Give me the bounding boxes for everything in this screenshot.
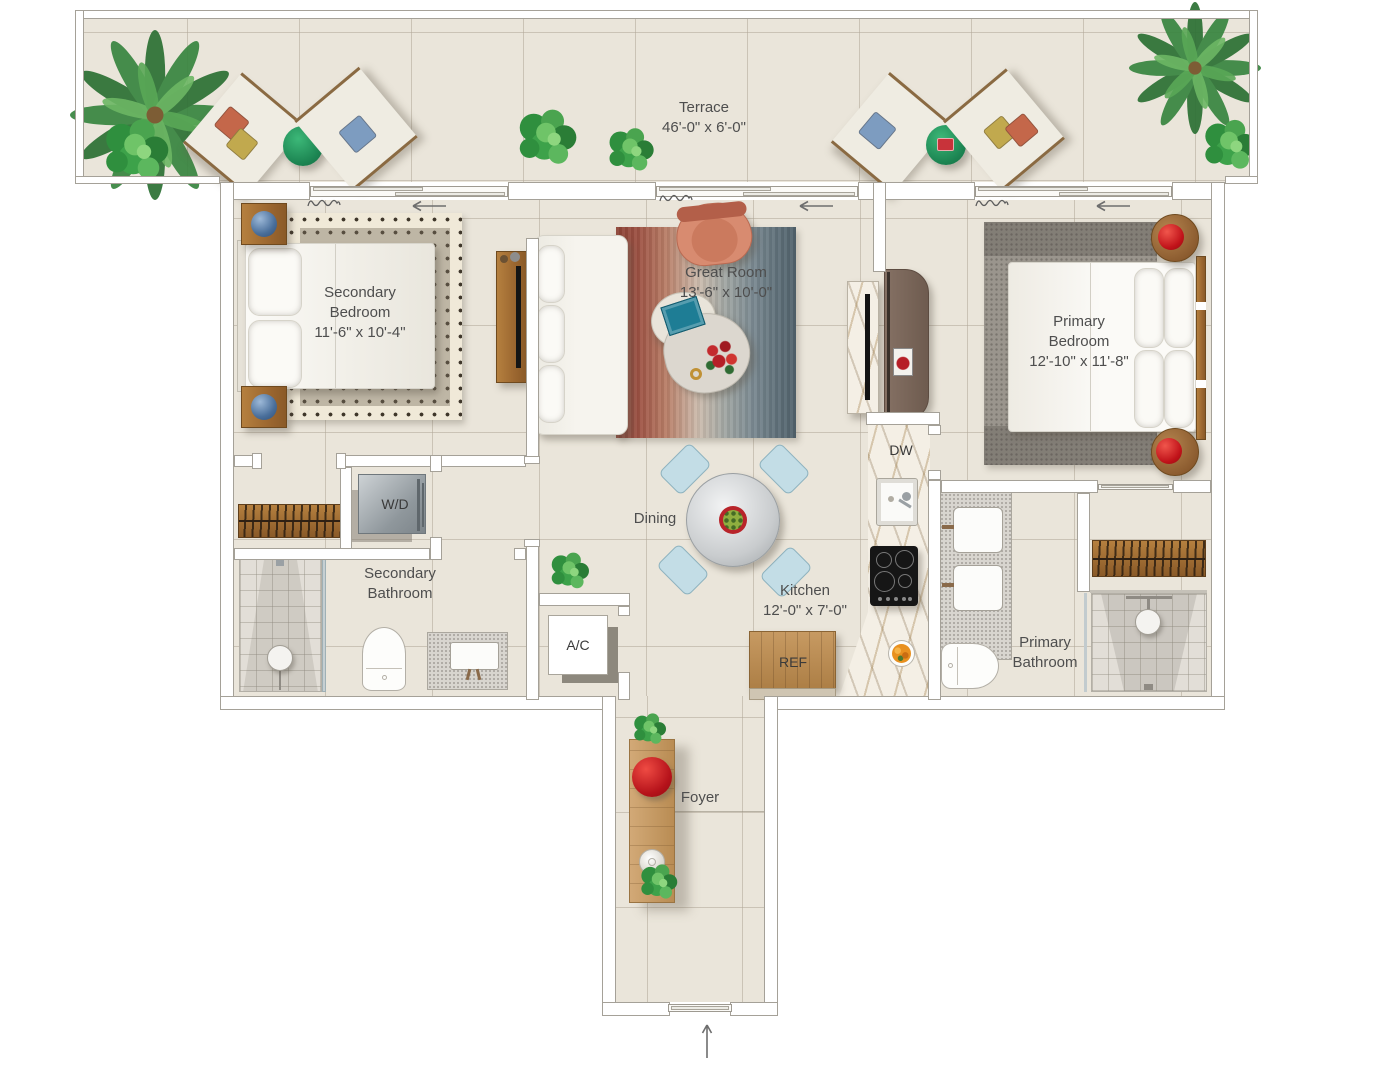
decor-knob: [500, 255, 508, 263]
label-line: Great Room: [626, 263, 826, 283]
label-line: W/D: [345, 495, 445, 514]
door-spring-icon: [658, 192, 694, 204]
label-dishwasher: DW: [851, 441, 951, 460]
wall-segment: [430, 455, 442, 472]
sliding-door: [975, 186, 1172, 197]
faucet-handle: [466, 669, 472, 680]
wall-segment: [764, 696, 778, 1016]
door-panel: [671, 1006, 729, 1010]
wall-segment: [618, 672, 630, 700]
label-line: Bathroom: [945, 653, 1145, 673]
room-label-primary-bedroom: Primary Bedroom 12'-10" x 11'-8": [979, 312, 1179, 372]
door-panel: [978, 187, 1088, 191]
door-slide-arrow-icon: [408, 200, 448, 212]
decor-knob: [510, 252, 520, 262]
cushion: [338, 114, 377, 153]
bed-headboard: [1196, 256, 1206, 440]
wall-segment: [730, 1002, 778, 1016]
faucet: [902, 492, 911, 501]
label-line: DW: [851, 441, 951, 460]
label-line: 11'-6" x 10'-4": [260, 323, 460, 343]
cushion: [858, 111, 897, 150]
wall-segment: [1249, 10, 1258, 184]
wall-segment: [75, 10, 1258, 19]
wall-segment: [508, 182, 656, 200]
label-air-conditioner: A/C: [528, 636, 628, 655]
wall-segment: [866, 412, 940, 425]
table-lamp: [251, 211, 277, 237]
door-panel: [395, 192, 505, 196]
label-line: Bedroom: [260, 303, 460, 323]
label-line: A/C: [528, 636, 628, 655]
wall-segment: [1225, 176, 1258, 184]
label-line: 13'-6" x 10'-0": [626, 283, 826, 303]
label-line: 12'-10" x 11'-8": [979, 352, 1179, 372]
table-lamp: [251, 394, 277, 420]
vanity: [427, 632, 508, 690]
label-refrigerator: REF: [743, 653, 843, 672]
shower-head: [1135, 609, 1161, 635]
wall-segment: [765, 696, 1225, 710]
shower-valve: [276, 560, 284, 566]
vanity-sink: [953, 565, 1003, 611]
door-slide-arrow-icon: [795, 200, 835, 212]
headboard-gap: [1196, 302, 1206, 310]
door-jamb: [524, 456, 540, 464]
drain: [888, 496, 894, 502]
entry-door: [668, 1004, 732, 1012]
label-line: REF: [743, 653, 843, 672]
wall-segment: [602, 1002, 670, 1016]
wall-segment: [1173, 480, 1211, 493]
wall-segment: [220, 182, 234, 710]
label-washer-dryer: W/D: [345, 495, 445, 514]
door-panel: [659, 187, 771, 191]
media-cabinet: [884, 269, 929, 421]
label-line: Terrace: [604, 98, 804, 118]
entry-arrow-icon: [700, 1020, 714, 1060]
label-line: 46'-0" x 6'-0": [604, 118, 804, 138]
door-jamb: [252, 453, 262, 469]
door-jamb: [928, 470, 941, 480]
label-line: Secondary: [260, 283, 460, 303]
fruit: [892, 644, 911, 663]
shower-head: [267, 645, 293, 671]
label-line: Secondary: [300, 564, 500, 584]
table-lamp: [1156, 438, 1182, 464]
label-line: Foyer: [650, 788, 750, 808]
wall-segment: [75, 176, 220, 184]
faucet-handle: [942, 583, 954, 587]
toilet-tank-line: [366, 668, 402, 669]
sofa-cushion: [537, 245, 565, 303]
cushion: [1004, 113, 1039, 148]
wall-segment: [526, 545, 539, 700]
wall-line: [1090, 590, 1207, 593]
sofa-cushion: [537, 365, 565, 423]
wall-segment: [941, 480, 1098, 493]
door-jamb: [336, 453, 346, 469]
label-line: Kitchen: [705, 581, 905, 601]
door-jamb: [618, 606, 630, 616]
shower-drain: [1144, 684, 1153, 690]
wall-segment: [873, 182, 886, 272]
closet-rod: [239, 520, 349, 522]
tray: [937, 138, 954, 151]
burner: [895, 550, 914, 569]
media-console: [496, 251, 527, 383]
wall-segment: [1077, 493, 1090, 592]
room-label-kitchen: Kitchen 12'-0" x 7'-0": [705, 581, 905, 621]
bush-plant-icon: [630, 856, 686, 908]
door-panel: [743, 192, 855, 196]
door-slide-arrow-icon: [1092, 200, 1132, 212]
room-label-dining: Dining: [605, 509, 705, 529]
centerpiece-bowl: [719, 506, 747, 534]
armchair-seat: [689, 216, 739, 265]
door-spring-icon: [974, 197, 1010, 209]
toilet: [362, 627, 406, 691]
room-label-primary-bathroom: Primary Bathroom: [945, 633, 1145, 673]
label-line: Primary: [945, 633, 1145, 653]
room-label-foyer: Foyer: [650, 788, 750, 808]
wall-segment: [1211, 182, 1225, 710]
bush-plant-icon: [542, 544, 596, 598]
door-jamb: [514, 548, 526, 560]
tv-screen: [516, 266, 521, 368]
wall-segment: [539, 593, 630, 606]
door-jamb: [928, 425, 941, 435]
sofa-cushion: [537, 305, 565, 363]
wall-segment: [526, 238, 539, 462]
room-label-secondary-bedroom: Secondary Bedroom 11'-6" x 10'-4": [260, 283, 460, 343]
wall-segment: [75, 10, 84, 184]
framed-art: [893, 348, 913, 376]
room-label-great-room: Great Room 13'-6" x 10'-0": [626, 263, 826, 303]
monstera-plant-icon: [505, 95, 587, 180]
wall-segment: [430, 537, 442, 560]
faucet-handle: [942, 525, 954, 529]
centerpiece-fruit: [723, 510, 743, 530]
room-label-terrace: Terrace 46'-0" x 6'-0": [604, 98, 804, 138]
cabinet-edge: [887, 272, 890, 418]
label-line: Primary: [979, 312, 1179, 332]
media-wall-panel: [847, 281, 879, 414]
room-label-secondary-bathroom: Secondary Bathroom: [300, 564, 500, 604]
toilet-button: [382, 675, 387, 680]
bush-plant-icon: [626, 706, 672, 752]
closet-hanging-rod: [238, 504, 350, 538]
closet-rod: [1093, 558, 1205, 560]
wall-segment: [928, 480, 941, 700]
fruit-bowl: [888, 640, 915, 667]
kitchen-sink: [876, 478, 918, 526]
vanity-sink: [953, 507, 1003, 553]
door-jamb: [524, 539, 540, 547]
flower-bouquet: [700, 336, 742, 378]
label-line: Bathroom: [300, 584, 500, 604]
label-line: 12'-0" x 7'-0": [705, 601, 905, 621]
burner: [876, 552, 892, 568]
label-line: Dining: [605, 509, 705, 529]
decor-ring: [690, 368, 702, 380]
door-panel: [313, 187, 423, 191]
wall-segment: [234, 548, 430, 560]
vanity-sink: [450, 642, 499, 670]
door-spring-icon: [306, 197, 342, 209]
wall-segment: [220, 696, 615, 710]
door-panel: [1059, 192, 1169, 196]
pocket-door: [1098, 484, 1173, 490]
door-panel: [1101, 485, 1169, 488]
faucet-handle: [476, 669, 482, 680]
headboard-gap: [1196, 380, 1206, 388]
sliding-door: [310, 186, 508, 197]
table-lamp: [1158, 224, 1184, 250]
wall-segment: [602, 696, 616, 1016]
closet-hanging-rod: [1092, 540, 1206, 577]
tv-screen: [865, 294, 870, 400]
floor-plan: Terrace 46'-0" x 6'-0" Secondary Bedroom…: [0, 0, 1383, 1074]
label-line: Bedroom: [979, 332, 1179, 352]
floor-seam: [675, 811, 764, 812]
